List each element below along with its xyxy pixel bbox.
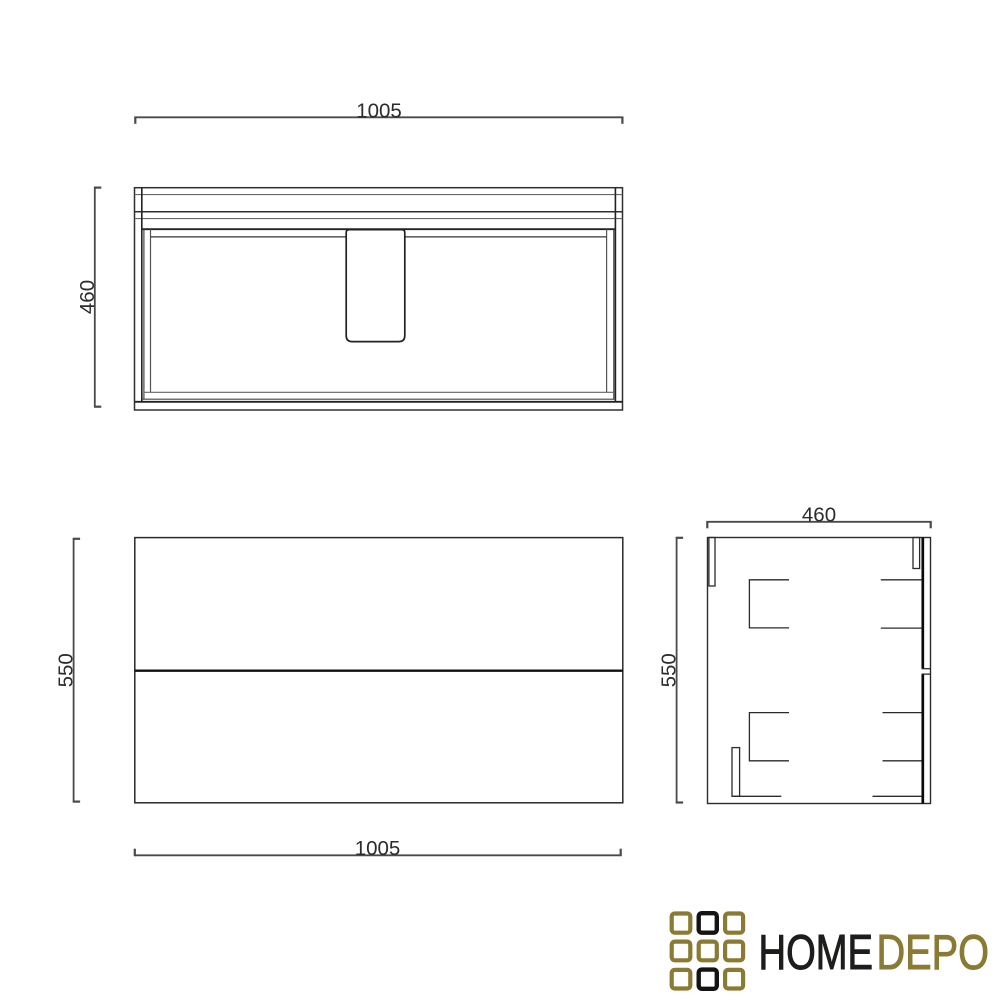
svg-text:1005: 1005: [355, 837, 401, 860]
svg-text:HOME: HOME: [759, 926, 874, 980]
svg-text:550: 550: [55, 653, 78, 687]
svg-text:460: 460: [76, 280, 99, 314]
svg-text:1005: 1005: [356, 100, 402, 123]
svg-text:550: 550: [658, 653, 681, 687]
svg-text:DEPO: DEPO: [877, 926, 990, 980]
svg-text:460: 460: [802, 504, 836, 527]
